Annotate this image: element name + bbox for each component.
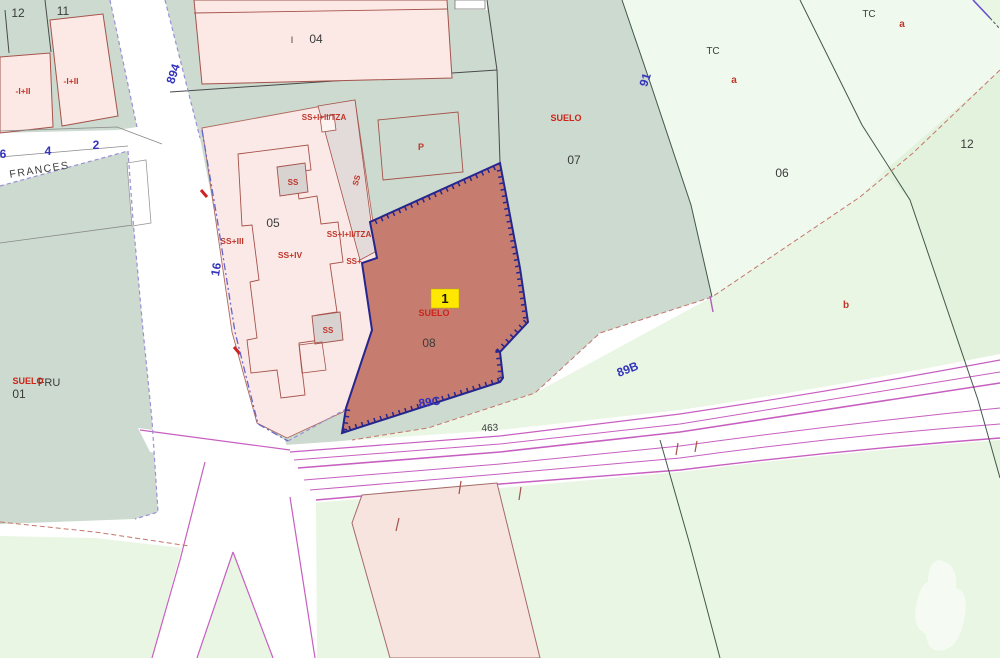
- label-portal-4: 4: [45, 144, 52, 158]
- label-zone-a-1: a: [731, 75, 737, 86]
- label-suelo-07: SUELO: [550, 113, 581, 123]
- label-parcel-01: 01: [12, 387, 26, 401]
- label-parcel-06: 06: [775, 166, 789, 180]
- label-suelo-08: SUELO: [418, 308, 449, 318]
- label-const-3: SS+I+II/TZA: [302, 113, 347, 122]
- label-road-16: 16: [208, 261, 224, 277]
- label-parcel-05: 05: [266, 216, 280, 230]
- label-parcel-04: 04: [309, 32, 323, 46]
- label-const-8: SS: [288, 178, 299, 187]
- label-parcel-07: 07: [567, 153, 581, 167]
- label-road-894: 894: [163, 62, 183, 86]
- label-zone-tc-1: TC: [706, 46, 719, 57]
- cadastral-map-viewport[interactable]: 121104I050706120801FRU463FRANCESTCTC-I+I…: [0, 0, 1000, 658]
- label-const-5: SS+III: [220, 236, 243, 246]
- label-const-2: -I+II: [64, 76, 79, 86]
- label-const-9: SS: [323, 326, 334, 335]
- top-notch-white: [455, 0, 485, 9]
- label-const-p: P: [418, 142, 424, 152]
- label-zone-b: b: [843, 300, 849, 311]
- label-parcel-12-left: 12: [11, 6, 25, 20]
- label-const-1: -I+II: [16, 86, 31, 96]
- red-tick-1: [201, 190, 207, 197]
- label-parcel-08: 08: [422, 336, 436, 350]
- label-const-4: SS+I+II/TZA: [327, 230, 372, 239]
- label-portal-6: 6: [0, 147, 7, 161]
- zone-bottom-left-green: [0, 536, 183, 658]
- label-zone-a-2: a: [899, 19, 905, 30]
- label-road-463: 463: [481, 423, 499, 435]
- label-parcel-04-roman: I: [291, 35, 294, 45]
- street-number-line: [0, 146, 128, 157]
- map-canvas: 121104I050706120801FRU463FRANCESTCTC-I+I…: [0, 0, 1000, 658]
- label-const-6: SS+IV: [278, 250, 303, 260]
- label-highlight-badge-number: 1: [441, 291, 448, 306]
- label-parcel-11: 11: [57, 4, 70, 18]
- label-const-7: SS+: [346, 257, 362, 266]
- label-suelo-01: SUELO: [12, 376, 43, 386]
- label-portal-2: 2: [93, 138, 100, 152]
- label-zone-tc-2: TC: [862, 9, 875, 20]
- label-parcel-12-right: 12: [960, 137, 974, 151]
